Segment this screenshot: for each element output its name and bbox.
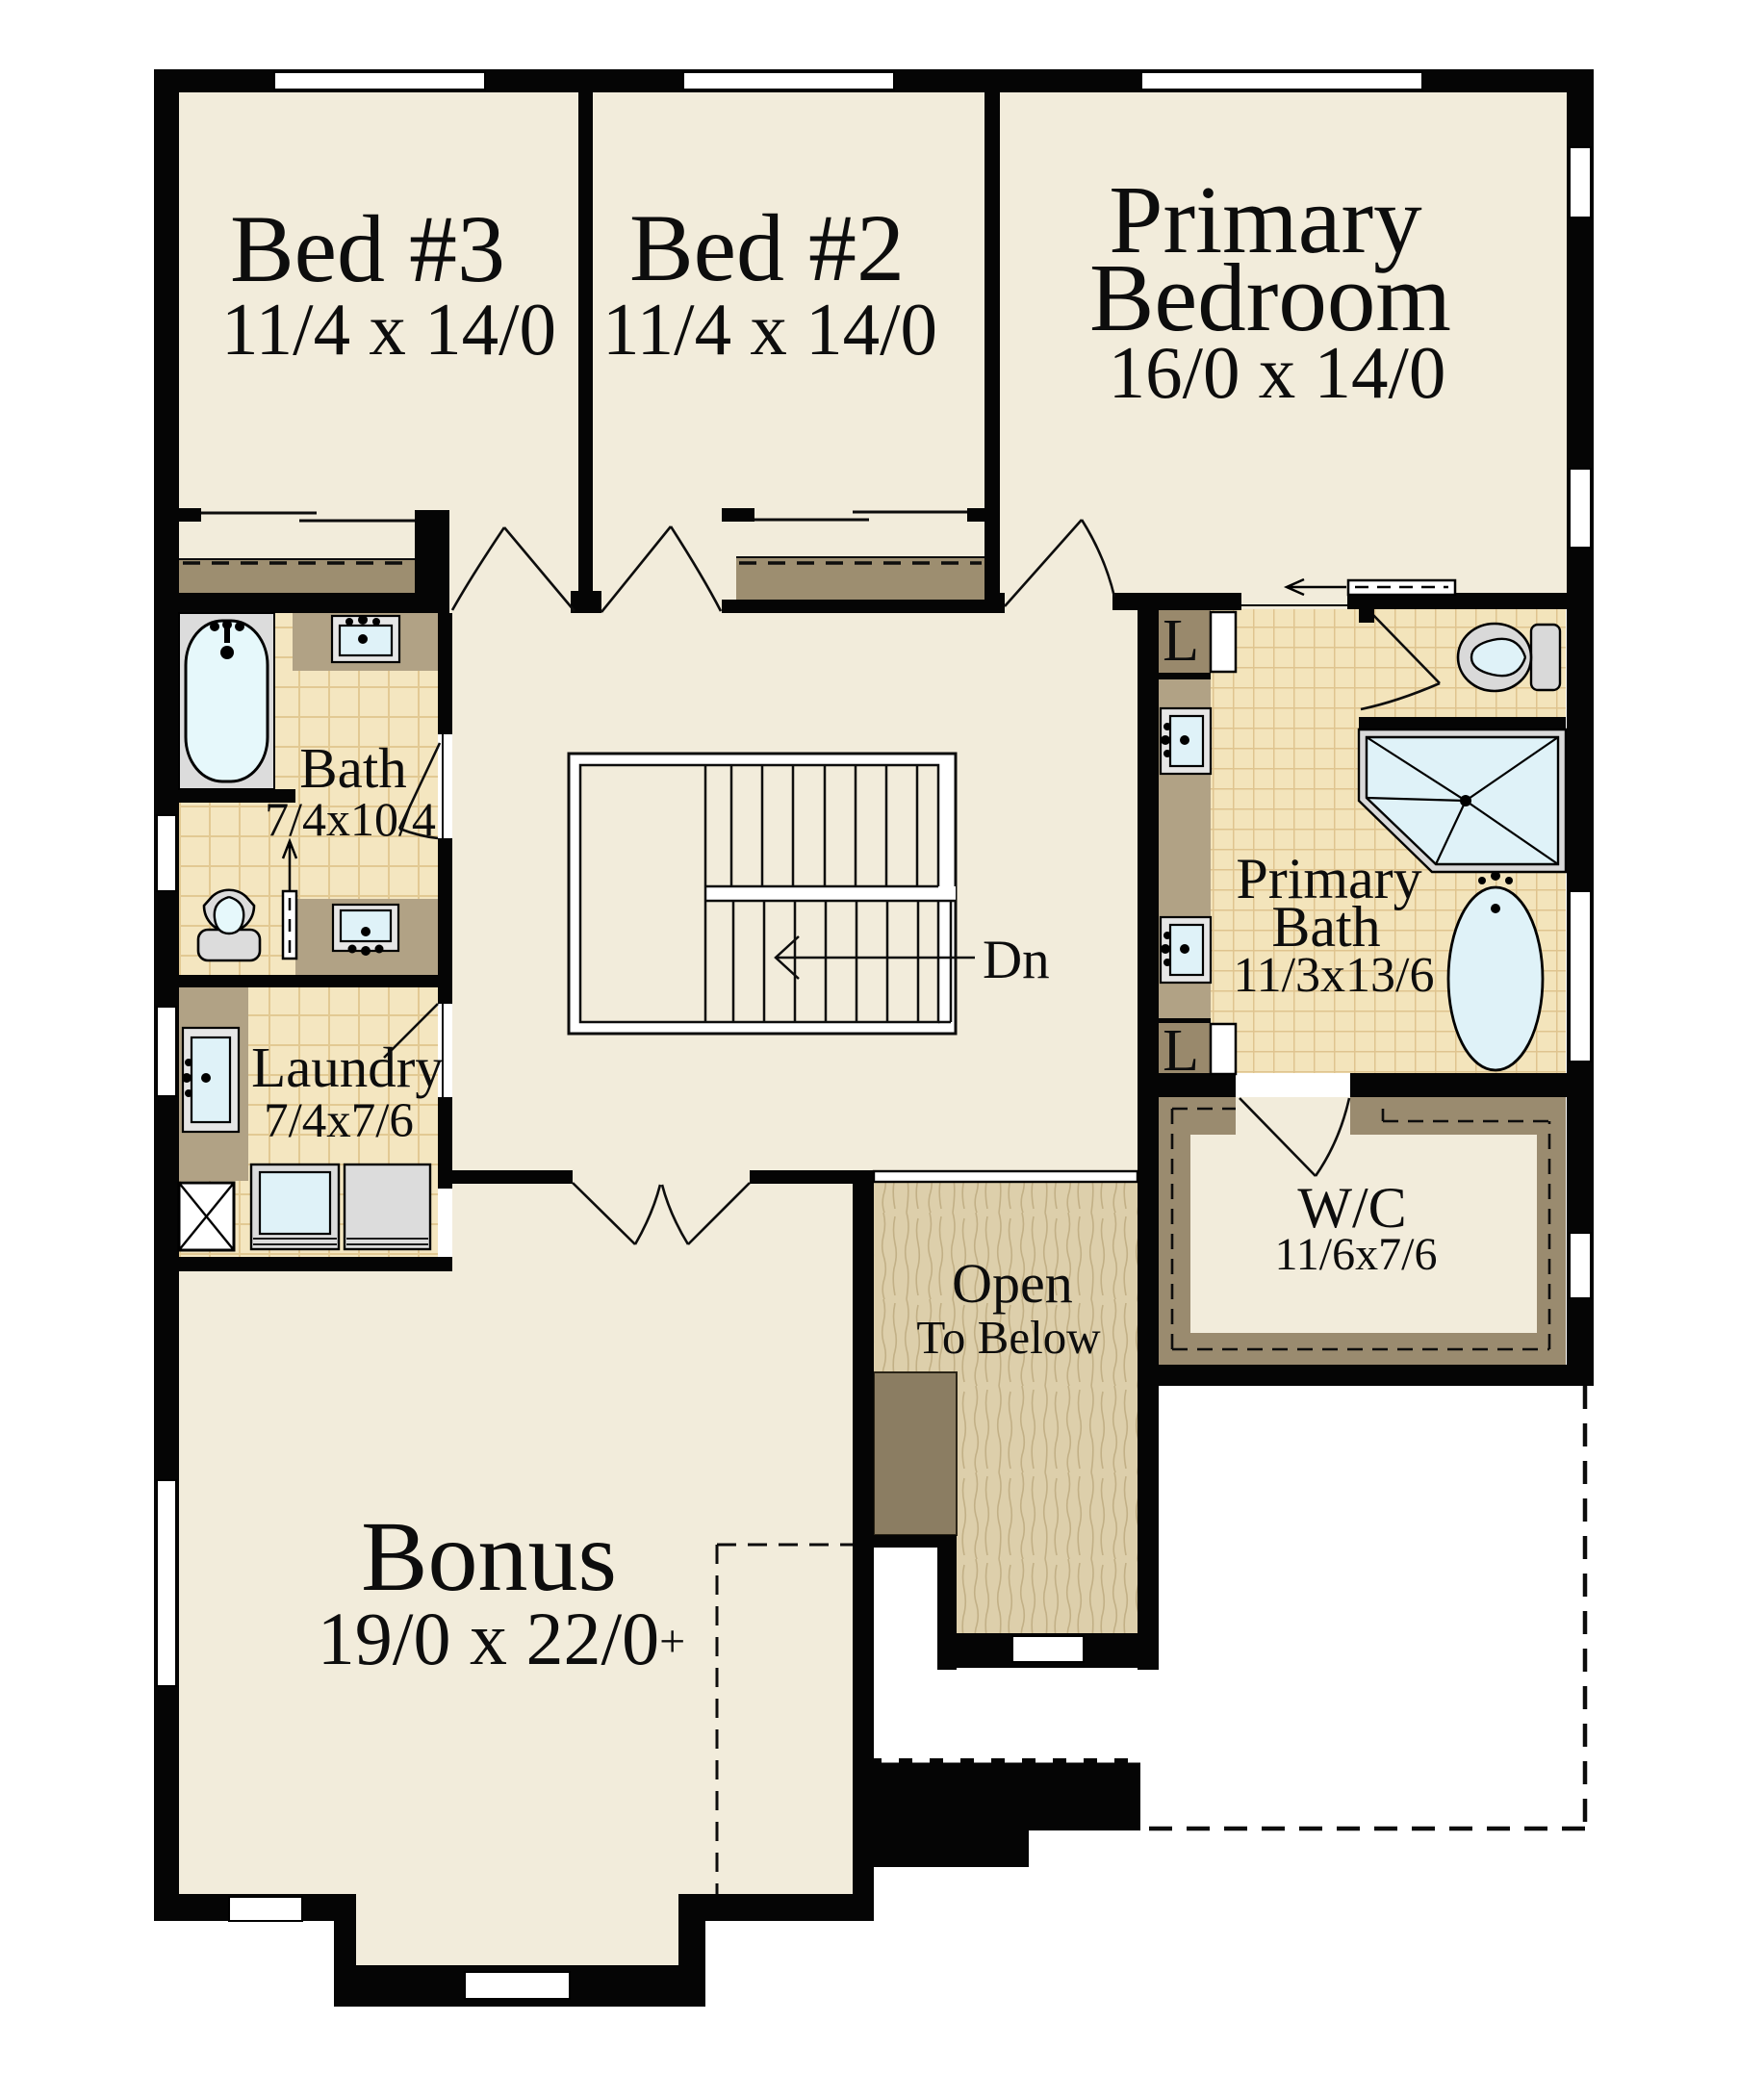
svg-text:19/0 x 22/0+: 19/0 x 22/0+	[318, 1597, 685, 1680]
svg-text:Bonus: Bonus	[361, 1501, 617, 1612]
svg-text:7/4x7/6: 7/4x7/6	[264, 1094, 414, 1148]
svg-text:To Below: To Below	[916, 1311, 1101, 1364]
svg-text:Bed #2: Bed #2	[629, 194, 905, 301]
svg-text:Dn: Dn	[983, 930, 1050, 990]
svg-text:L: L	[1163, 608, 1199, 674]
svg-text:11/3x13/6: 11/3x13/6	[1234, 948, 1435, 1003]
svg-text:L: L	[1163, 1018, 1199, 1084]
svg-text:11/6x7/6: 11/6x7/6	[1275, 1229, 1438, 1280]
svg-text:Laundry: Laundry	[251, 1036, 444, 1099]
svg-text:Bath: Bath	[299, 736, 406, 800]
svg-text:Bed #3: Bed #3	[230, 195, 505, 302]
svg-text:16/0 x 14/0: 16/0 x 14/0	[1109, 331, 1446, 414]
svg-text:Open: Open	[952, 1252, 1073, 1315]
svg-text:11/4 x 14/0: 11/4 x 14/0	[221, 288, 556, 371]
svg-text:7/4x10/4: 7/4x10/4	[265, 792, 436, 846]
svg-text:11/4 x 14/0: 11/4 x 14/0	[602, 288, 937, 371]
